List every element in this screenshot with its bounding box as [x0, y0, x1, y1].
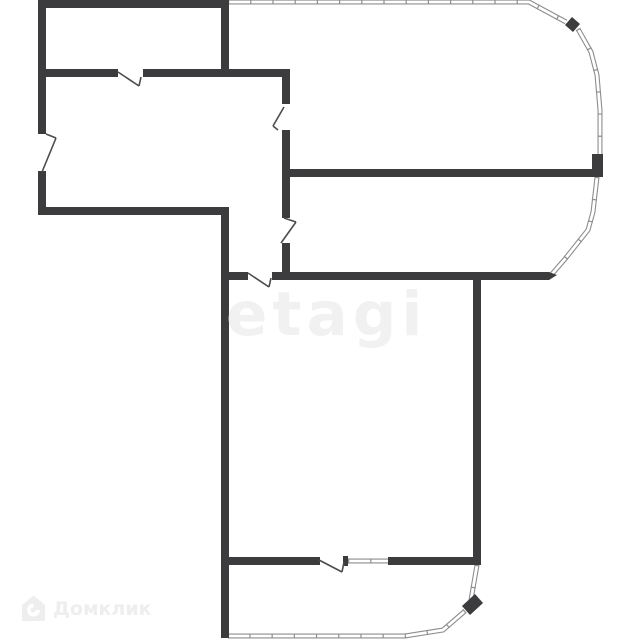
floorplan-canvas [0, 0, 640, 640]
floorplan-image: etagi Домклик [0, 0, 640, 640]
walls-layer [38, 0, 603, 638]
doors-layer [42, 72, 344, 572]
